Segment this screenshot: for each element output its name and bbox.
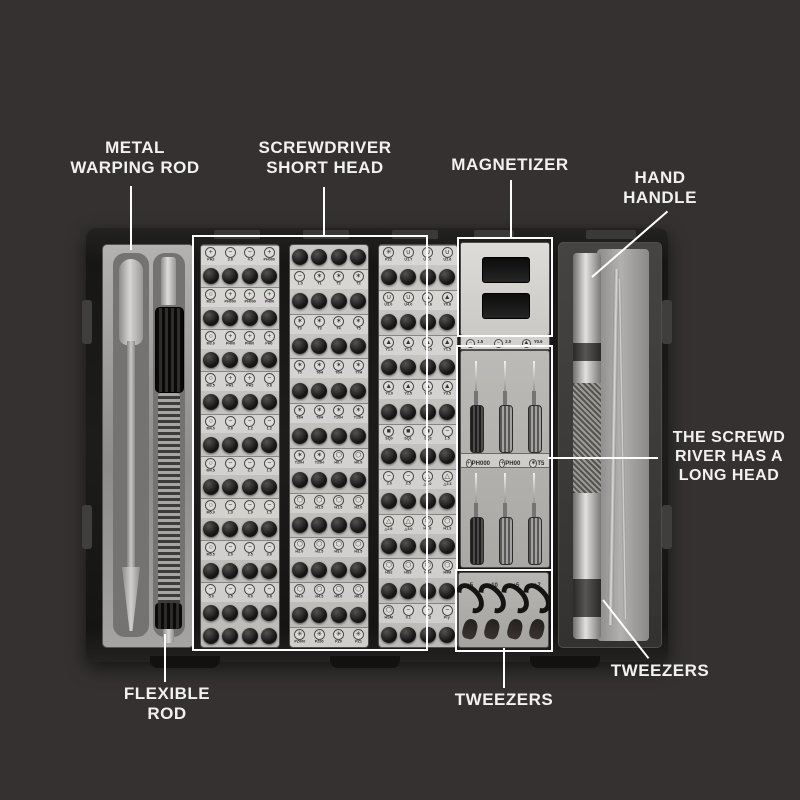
callout-box-bit-columns [192, 235, 428, 651]
bit-size-label: ▲Y3.5 [438, 381, 457, 398]
case-clip [82, 505, 92, 549]
size-label-text: 2.0 [505, 340, 511, 344]
screwdriver-bit [439, 583, 455, 599]
label-metal-warping-rod: METAL WARPING ROD [40, 138, 230, 179]
bit-size-label: ▲Y0.8 [438, 292, 457, 309]
bit-size-text: Y1.5 [443, 348, 451, 352]
case-foot [330, 656, 400, 668]
handle-cap [573, 253, 601, 269]
size-label-text: Y0.6 [534, 340, 543, 344]
bit-size-text: H1.3 [443, 527, 451, 531]
handle-collar [573, 343, 601, 361]
callout-line-screwdriver-short-head [323, 187, 325, 236]
bit-size-label: −1.5 [438, 426, 457, 443]
bit-head-icon: ▲ [442, 381, 453, 392]
case-clip [662, 505, 672, 549]
screwdriver-bit [439, 493, 455, 509]
handle-end-band [573, 579, 601, 617]
screwdriver-bit [439, 269, 455, 285]
case-clip [82, 300, 92, 344]
label-screwdriver-short-head: SCREWDRIVER SHORT HEAD [230, 138, 420, 179]
metal-warping-rod-stem [127, 341, 135, 571]
flexible-rod-lower-collar [155, 603, 182, 629]
bit-size-text: Y3.5 [443, 392, 451, 396]
handle-knurl-grip [573, 383, 601, 493]
screwdriver-bit [439, 404, 455, 420]
bit-head-icon: − [442, 605, 453, 616]
handle-neck [573, 361, 601, 383]
bit-head-icon: △ [442, 471, 453, 482]
bit-head-icon: ▲ [442, 292, 453, 303]
bit-size-text: △2.3 [443, 482, 451, 486]
label-tweezers-center: TWEEZERS [446, 690, 562, 710]
callout-line-metal-warping-rod [130, 186, 132, 250]
handle-end [573, 617, 601, 639]
screwdriver-bit [439, 627, 455, 643]
bit-size-text: Pry [444, 616, 450, 620]
bit-head-icon: ∪ [442, 247, 453, 258]
case-foot [530, 656, 600, 668]
label-flexible-rod: FLEXIBLE ROD [108, 684, 226, 725]
bit-size-text: H9M [443, 571, 451, 575]
flexible-rod-spring [158, 393, 180, 605]
case-foot [150, 656, 220, 668]
bit-size-label: ⬡H1.3 [438, 516, 457, 533]
case-clip [662, 300, 672, 344]
label-hand-handle: HAND HANDLE [605, 168, 715, 209]
bit-size-label: ∪U2.6 [438, 247, 457, 264]
screwdriver-bit [439, 538, 455, 554]
metal-warping-rod-tool [119, 259, 143, 345]
handle-lower-barrel [573, 493, 601, 579]
label-tweezers-right: TWEEZERS [602, 661, 718, 681]
callout-box-magnetizer [457, 237, 553, 337]
screwdriver-bit [439, 359, 455, 375]
bit-size-text: Y0.8 [443, 303, 451, 307]
bit-head-icon: ⬡ [442, 560, 453, 571]
handle-barrel [573, 269, 601, 343]
bit-size-label: −Pry [438, 605, 457, 622]
flexible-rod-hex-tip [161, 257, 176, 305]
bit-size-label: △△2.3 [438, 471, 457, 489]
bit-size-label: ⬡H9M [438, 560, 457, 577]
left-compartment [102, 244, 194, 648]
case-hinge [586, 230, 636, 239]
callout-box-long-head-drivers [456, 345, 553, 571]
bit-head-icon: − [442, 426, 453, 437]
callout-line-tweezers-center [503, 648, 505, 688]
callout-line-magnetizer [510, 180, 512, 237]
bit-size-text: U2.6 [443, 258, 451, 262]
flexible-rod-collar [155, 307, 184, 393]
size-label-text: 1.5 [477, 340, 483, 344]
bit-size-label: ▲Y1.5 [438, 337, 457, 354]
callout-box-tweezer-heads [455, 569, 553, 652]
bit-head-icon: ⬡ [442, 516, 453, 527]
label-long-head-note: THE SCREWD RIVER HAS A LONG HEAD [660, 428, 798, 486]
hand-handle-tool [573, 253, 601, 639]
bit-head-icon: ▲ [442, 337, 453, 348]
bit-size-text: 1.5 [445, 437, 450, 441]
callout-line-long-head-note [548, 457, 658, 459]
screwdriver-bit [439, 448, 455, 464]
right-compartment [558, 242, 662, 648]
label-magnetizer: MAGNETIZER [425, 155, 595, 175]
screwdriver-bit [439, 314, 455, 330]
callout-line-flexible-rod [164, 634, 166, 682]
